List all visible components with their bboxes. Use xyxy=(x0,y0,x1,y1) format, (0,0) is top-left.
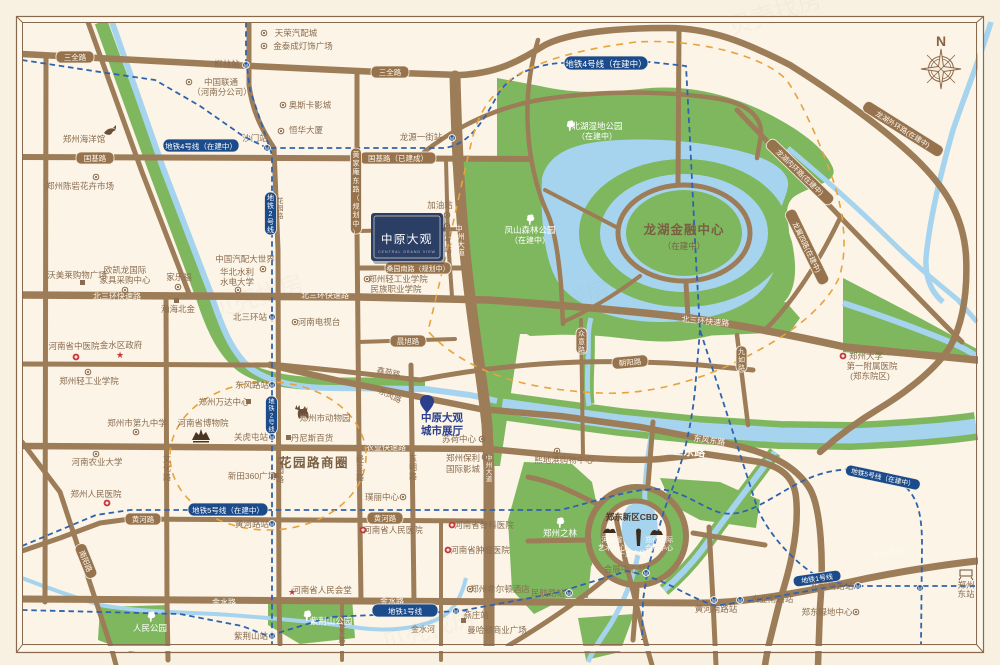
svg-text:中国汽配大世界: 中国汽配大世界 xyxy=(215,254,275,264)
svg-text:加油站: 加油站 xyxy=(427,200,453,210)
svg-text:M: M xyxy=(265,147,269,153)
svg-text:河南省人民会堂: 河南省人民会堂 xyxy=(292,585,352,595)
svg-text:地铁5号线（在建中）: 地铁5号线（在建中） xyxy=(192,505,264,515)
svg-text:东站: 东站 xyxy=(957,589,975,599)
svg-text:欧凯龙国际: 欧凯龙国际 xyxy=(104,265,147,275)
svg-text:黄河路站: 黄河路站 xyxy=(235,519,270,529)
svg-text:家乐福: 家乐福 xyxy=(166,272,192,282)
svg-text:郑州市动物园: 郑州市动物园 xyxy=(299,413,350,423)
svg-text:北三环快速路: 北三环快速路 xyxy=(93,291,141,301)
svg-text:河南省骨科医院: 河南省骨科医院 xyxy=(454,520,514,530)
svg-text:加气站: 加气站 xyxy=(444,228,452,254)
svg-text:东风路站: 东风路站 xyxy=(235,380,270,390)
svg-text:天荣汽配城: 天荣汽配城 xyxy=(275,28,318,38)
svg-text:黄河南路站: 黄河南路站 xyxy=(695,604,738,614)
svg-text:郑东绿地中心: 郑东绿地中心 xyxy=(801,607,853,617)
svg-text:(郑东院区): (郑东院区) xyxy=(850,371,890,381)
svg-text:M: M xyxy=(244,64,248,70)
svg-text:中国联通: 中国联通 xyxy=(204,77,239,87)
svg-text:璞丽中心: 璞丽中心 xyxy=(365,492,400,502)
svg-text:龙源一街站: 龙源一街站 xyxy=(400,132,443,142)
svg-text:河南农业大学: 河南农业大学 xyxy=(71,457,123,467)
svg-text:郑州轻工业学院: 郑州轻工业学院 xyxy=(368,274,428,284)
svg-text:众意路: 众意路 xyxy=(578,330,585,354)
svg-text:熙地港购物中心: 熙地港购物中心 xyxy=(534,455,594,465)
svg-text:金水区政府: 金水区政府 xyxy=(100,340,143,350)
svg-text:郑州万达中心: 郑州万达中心 xyxy=(198,397,250,407)
svg-text:关虎屯站: 关虎屯站 xyxy=(234,432,269,442)
svg-text:国基路（已建成）: 国基路（已建成） xyxy=(368,153,428,163)
svg-text:M: M xyxy=(856,585,860,591)
svg-text:郑东新区CBD: 郑东新区CBD xyxy=(606,512,658,522)
svg-text:黄河路: 黄河路 xyxy=(132,514,155,524)
svg-text:（在建中）: （在建中） xyxy=(663,241,706,251)
svg-text:新田360广场: 新田360广场 xyxy=(228,471,276,481)
svg-text:地铁4号线（在建中）: 地铁4号线（在建中） xyxy=(165,141,237,151)
svg-text:北湖湿地公园: 北湖湿地公园 xyxy=(571,121,622,131)
svg-text:M: M xyxy=(738,599,742,605)
svg-text:M: M xyxy=(270,384,274,390)
svg-text:城市展厅: 城市展厅 xyxy=(421,424,463,437)
svg-text:郑州海洋馆: 郑州海洋馆 xyxy=(63,134,106,144)
svg-text:M: M xyxy=(270,436,274,442)
svg-text:河南省博物院: 河南省博物院 xyxy=(177,418,229,428)
svg-text:九如路: 九如路 xyxy=(738,347,745,372)
svg-text:河南电视台: 河南电视台 xyxy=(298,317,341,327)
svg-text:中州大道: 中州大道 xyxy=(486,453,493,483)
svg-text:M: M xyxy=(270,635,274,641)
svg-text:沃美莱购物广场: 沃美莱购物广场 xyxy=(47,270,107,280)
svg-text:华北水利: 华北水利 xyxy=(220,267,254,277)
svg-text:M: M xyxy=(644,572,648,578)
svg-text:人民公园: 人民公园 xyxy=(133,623,167,633)
svg-text:M: M xyxy=(450,137,454,143)
svg-text:郑州之林: 郑州之林 xyxy=(543,528,578,538)
svg-text:奥斯卡影城: 奥斯卡影城 xyxy=(289,100,332,110)
svg-text:河南省肿瘤医院: 河南省肿瘤医院 xyxy=(450,545,510,555)
svg-text:花园路商圈: 花园路商圈 xyxy=(279,455,349,470)
svg-text:M: M xyxy=(270,316,274,322)
svg-text:北三环快速路: 北三环快速路 xyxy=(301,290,349,300)
svg-text:黄家庵东路（规划中）: 黄家庵东路（规划中） xyxy=(353,150,360,236)
svg-text:民族职业学院: 民族职业学院 xyxy=(370,284,422,294)
svg-text:N: N xyxy=(936,33,946,49)
svg-text:国基路: 国基路 xyxy=(84,153,107,163)
svg-text:紫荆山公园: 紫荆山公园 xyxy=(310,616,353,626)
svg-text:凤山森林公园: 凤山森林公园 xyxy=(504,225,555,235)
svg-text:紫荆山站: 紫荆山站 xyxy=(234,631,269,641)
svg-text:恒华大厦: 恒华大厦 xyxy=(289,125,324,135)
svg-text:花园路: 花园路 xyxy=(277,196,284,220)
svg-text:农业快速路: 农业快速路 xyxy=(366,442,406,452)
svg-text:地铁1号线: 地铁1号线 xyxy=(388,606,423,616)
svg-text:金泰成灯饰广场: 金泰成灯饰广场 xyxy=(273,41,333,51)
svg-text:郑州国际: 郑州国际 xyxy=(645,535,673,544)
svg-text:千玺广场: 千玺广场 xyxy=(618,549,646,558)
svg-text:第一附属医院: 第一附属医院 xyxy=(846,361,898,371)
svg-text:地铁4号线（在建中）: 地铁4号线（在建中） xyxy=(565,59,646,69)
svg-text:CENTRAL GRAND VIEW: CENTRAL GRAND VIEW xyxy=(378,250,436,254)
svg-text:郑州轻工业学院: 郑州轻工业学院 xyxy=(59,376,119,386)
svg-text:（在建中）: （在建中） xyxy=(510,235,550,245)
svg-text:郑州陈砦花卉市场: 郑州陈砦花卉市场 xyxy=(46,181,114,191)
svg-text:国际影城: 国际影城 xyxy=(446,464,481,474)
svg-text:沙门站: 沙门站 xyxy=(242,133,268,143)
svg-text:金水路: 金水路 xyxy=(212,597,236,607)
svg-text:郑州保利: 郑州保利 xyxy=(446,453,480,463)
svg-text:M: M xyxy=(918,587,922,593)
svg-text:朝阳路: 朝阳路 xyxy=(618,356,642,368)
svg-text:桑园南路（规划中）: 桑园南路（规划中） xyxy=(387,264,450,273)
svg-text:家具采购中心: 家具采购中心 xyxy=(99,275,151,285)
svg-text:郑州大学: 郑州大学 xyxy=(849,351,884,361)
svg-text:郑州希尔顿酒店: 郑州希尔顿酒店 xyxy=(470,584,530,594)
svg-text:河南省中医院: 河南省中医院 xyxy=(48,341,100,351)
svg-text:瀚海北金: 瀚海北金 xyxy=(161,304,196,314)
svg-text:（在建中）: （在建中） xyxy=(577,131,617,141)
svg-text:经三路: 经三路 xyxy=(356,454,364,482)
svg-text:丹尼斯百货: 丹尼斯百货 xyxy=(291,433,334,443)
svg-text:三全路: 三全路 xyxy=(64,52,87,62)
svg-text:中原大观: 中原大观 xyxy=(421,411,463,424)
svg-text:黄河路: 黄河路 xyxy=(374,513,397,523)
svg-text:柳林站: 柳林站 xyxy=(214,59,240,69)
svg-text:河南省: 河南省 xyxy=(602,535,623,544)
svg-text:民航路站: 民航路站 xyxy=(531,588,566,598)
svg-text:★: ★ xyxy=(116,350,124,360)
svg-text:东明路: 东明路 xyxy=(409,453,417,481)
svg-text:郑州人民医院: 郑州人民医院 xyxy=(70,489,122,499)
svg-text:会展中心: 会展中心 xyxy=(645,543,673,552)
svg-text:M: M xyxy=(270,523,274,529)
svg-text:（河南分公司）: （河南分公司） xyxy=(192,87,252,97)
svg-text:农业南路站: 农业南路站 xyxy=(751,594,794,604)
svg-text:三全路: 三全路 xyxy=(379,67,402,77)
svg-text:河南省人民医院: 河南省人民医院 xyxy=(363,525,423,535)
svg-text:会展中心站: 会展中心站 xyxy=(604,564,647,574)
svg-text:晨旭路: 晨旭路 xyxy=(397,336,420,346)
svg-text:东风南路站: 东风南路站 xyxy=(811,581,854,591)
svg-text:龙湖金融中心: 龙湖金融中心 xyxy=(642,222,724,237)
svg-text:郑州市第九中学: 郑州市第九中学 xyxy=(107,418,167,428)
svg-text:M: M xyxy=(567,592,571,598)
svg-text:文化路: 文化路 xyxy=(163,454,171,482)
